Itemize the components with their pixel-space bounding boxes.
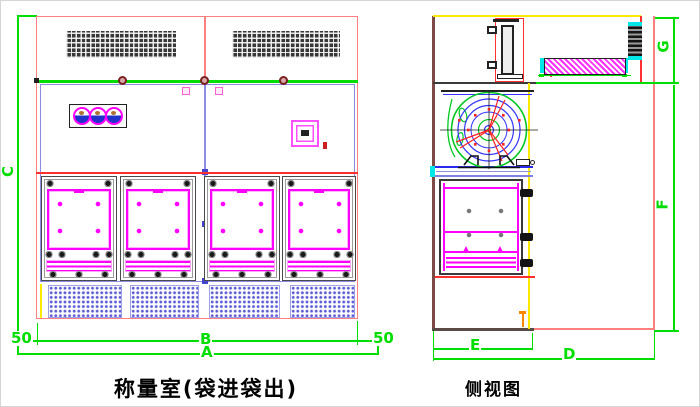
stack-cap-cyan bbox=[628, 56, 642, 60]
dim-line-f bbox=[673, 85, 675, 331]
filter-door bbox=[210, 189, 274, 250]
dim-tick bbox=[17, 15, 37, 17]
side-floor-dark bbox=[432, 328, 534, 331]
side-ceiling-dark bbox=[433, 82, 536, 84]
screw-row bbox=[282, 178, 356, 189]
label-tag bbox=[215, 87, 223, 95]
filter-module-4 bbox=[282, 176, 356, 281]
dim-tick bbox=[655, 17, 679, 19]
dim-tick bbox=[654, 330, 679, 332]
dim-extension bbox=[654, 331, 655, 360]
switch-box-glyph bbox=[301, 130, 309, 136]
flow-arrow bbox=[463, 243, 469, 252]
red-mark bbox=[323, 142, 327, 149]
dim-label-f: F bbox=[656, 198, 671, 210]
filter-door bbox=[288, 189, 350, 250]
return-grille bbox=[130, 285, 199, 318]
screw-row bbox=[41, 249, 117, 260]
duct-stub-cap bbox=[493, 19, 519, 22]
door-clamp bbox=[520, 259, 533, 267]
door-tag bbox=[74, 189, 84, 193]
side-top-yellow bbox=[433, 15, 641, 17]
screw-row bbox=[120, 249, 196, 260]
vent-grille-right bbox=[232, 31, 340, 58]
side-right-wall bbox=[653, 16, 655, 329]
screw-row bbox=[41, 269, 117, 280]
duct-stub-tab bbox=[487, 26, 497, 34]
flexible-duct bbox=[544, 58, 626, 75]
orange-mark bbox=[519, 311, 526, 314]
ceiling-line bbox=[36, 80, 358, 83]
dim-c-line bbox=[17, 16, 19, 354]
side-filter-box bbox=[439, 179, 523, 275]
dim-extension bbox=[433, 331, 434, 361]
screw-row bbox=[204, 269, 280, 280]
cad-drawing-canvas: C bbox=[0, 0, 700, 407]
centrifugal-fan bbox=[436, 89, 541, 173]
dim-line-e bbox=[433, 348, 533, 350]
dim-extension bbox=[37, 323, 38, 345]
screw-row bbox=[282, 269, 356, 280]
filter-module-1 bbox=[41, 176, 117, 281]
screw-row bbox=[120, 269, 196, 280]
filter-door bbox=[126, 189, 190, 250]
cabinet-center-post bbox=[204, 16, 206, 82]
duct-stub-bar bbox=[501, 25, 514, 75]
label-tag bbox=[182, 87, 190, 95]
filter-box-base-red bbox=[435, 276, 535, 278]
filter-door bbox=[47, 189, 111, 250]
corner-mark bbox=[34, 78, 39, 83]
door-clamp bbox=[520, 233, 533, 241]
return-grille bbox=[209, 285, 280, 318]
flow-arrow bbox=[497, 243, 503, 252]
ceiling-junction bbox=[279, 76, 288, 85]
dim-label-50-left: 50 bbox=[10, 331, 33, 346]
dim-line-a bbox=[17, 353, 379, 355]
filter-module-2 bbox=[120, 176, 196, 281]
return-grille bbox=[48, 285, 122, 318]
duct-stub-tab bbox=[487, 61, 497, 69]
dim-label-c: C bbox=[1, 165, 16, 178]
screw-row bbox=[41, 178, 117, 189]
door-tag bbox=[237, 189, 247, 193]
dim-line-g bbox=[673, 18, 675, 83]
dim-label-50-right: 50 bbox=[372, 331, 395, 346]
plenum-cap-cyan bbox=[430, 166, 435, 177]
ceiling-junction bbox=[200, 76, 209, 85]
duct-stub-foot bbox=[497, 74, 523, 79]
dim-label-a: A bbox=[200, 345, 214, 360]
return-grille bbox=[290, 285, 355, 318]
filter-bank-top-line bbox=[36, 172, 358, 174]
vent-grille-left bbox=[66, 31, 176, 58]
door-tag bbox=[153, 189, 163, 193]
exhaust-stack bbox=[628, 26, 642, 56]
duct-dim-line bbox=[538, 75, 631, 76]
filter-module-3 bbox=[204, 176, 280, 281]
filter-box-stripes bbox=[446, 257, 516, 269]
door-clamp bbox=[520, 189, 533, 197]
screw-row bbox=[204, 249, 280, 260]
screw-row bbox=[204, 178, 280, 189]
yellow-post bbox=[40, 284, 42, 318]
screw-row bbox=[282, 249, 356, 260]
side-floor-red bbox=[534, 328, 655, 330]
door-tag bbox=[314, 189, 324, 193]
side-view-title: 侧视图 bbox=[426, 375, 561, 400]
dim-line-d bbox=[433, 358, 655, 360]
dim-label-d: D bbox=[562, 347, 576, 362]
orange-mark bbox=[522, 313, 524, 327]
dim-label-e: E bbox=[469, 338, 481, 353]
front-view-title: 称量室(袋进袋出) bbox=[61, 373, 351, 403]
dim-tick bbox=[641, 82, 679, 84]
dim-label-g: G bbox=[657, 39, 672, 53]
indicator-lamp bbox=[105, 107, 123, 125]
ceiling-junction bbox=[118, 76, 127, 85]
dim-line-b bbox=[17, 340, 379, 342]
screw-row bbox=[120, 178, 196, 189]
